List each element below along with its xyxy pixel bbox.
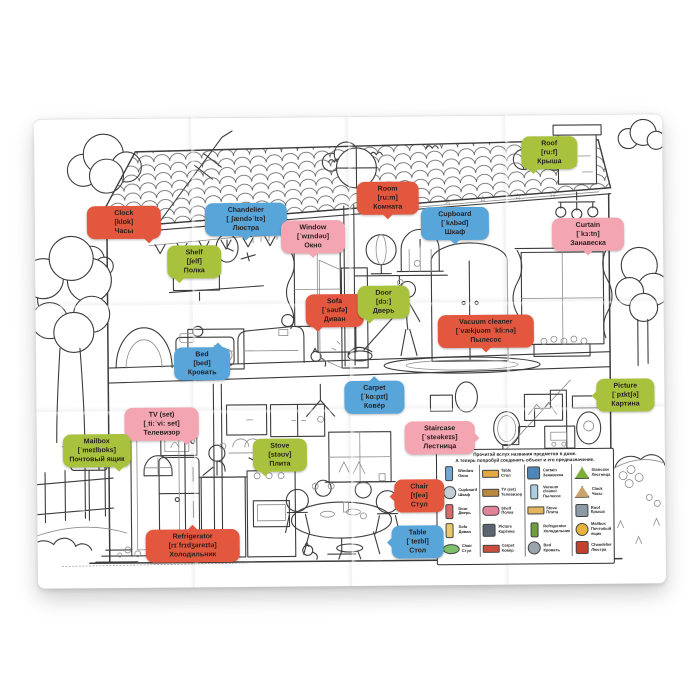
roof-label-bubble: Roof[ru:f]Крыша	[521, 136, 577, 170]
legend-column: CurtainЗанавескаVacuum cleanerПылесосSto…	[524, 465, 573, 557]
legend-item: CupboardШкаф	[442, 484, 477, 501]
tree-left-doodle	[34, 236, 141, 558]
label-ipa: [ˈmeɪlbɒks]	[68, 446, 126, 456]
legend-item: ClockЧасы	[575, 483, 612, 500]
shelf-label-bubble: Shelf[ʃelf]Полка	[167, 245, 221, 279]
room-label-bubble: Room[ru:m]Комната	[357, 181, 419, 215]
label-ru: Комната	[362, 203, 414, 213]
vacuum-icon	[527, 542, 541, 555]
table-label-bubble: Table[ˈteɪbl]Стол	[392, 525, 444, 559]
label-en: Bed	[179, 350, 225, 359]
sofa-icon	[482, 506, 499, 516]
stove-label-bubble: Stove[stəʊv]Плита	[253, 438, 307, 472]
legend-column: WindowОкноCupboardШкафDoorДверьSofaДиван…	[440, 465, 480, 557]
legend-item-label: BedКровать	[543, 543, 559, 553]
curtain-label-bubble: Curtain[ˈkɜ:tn]Занавеска	[552, 218, 624, 252]
legend-item-label: TableСтол	[501, 469, 511, 479]
staircase-label-bubble: Staircase[ˈsteəkeɪs]Лестница	[405, 421, 475, 455]
legend-item-label: PictureКартина	[498, 525, 514, 535]
legend-item-label: SofaДиван	[459, 525, 471, 535]
label-ru: Почтовый ящик	[68, 455, 126, 465]
legend-item: PictureКартина	[482, 521, 522, 538]
roof-icon	[575, 486, 590, 498]
legend-item: CurtainЗанавеска	[527, 465, 570, 482]
label-en: Roof	[526, 139, 572, 148]
label-ru: Лестница	[410, 442, 470, 452]
carpet-label-bubble: Carpet[ˈkɑ:pɪt]Ковёр	[344, 381, 404, 415]
curtain-icon	[442, 467, 456, 482]
carpet-icon	[483, 545, 500, 553]
label-ipa: [ru:m]	[362, 194, 414, 204]
legend-item-label: StoveПлита	[546, 506, 558, 516]
stove-icon	[527, 467, 541, 480]
label-ru: Полка	[172, 266, 216, 275]
mailbox-label-bubble: Mailbox[ˈmeɪlbɒks]Почтовый ящик	[63, 434, 131, 468]
label-en: Shelf	[172, 248, 216, 257]
legend-item: TV (set)Телевизор	[482, 484, 522, 501]
svg-text:☆: ☆	[514, 192, 522, 202]
legend-item: ChandelierЛюстра	[575, 539, 612, 556]
label-ru: Холодильник	[151, 550, 235, 560]
legend-item: MailboxПочтовый ящик	[575, 520, 612, 537]
chair-icon	[442, 504, 456, 519]
label-ipa: [ˈwɪndəʊ]	[286, 232, 340, 242]
legend-item: StaircaseЛестница	[574, 464, 611, 481]
legend-item: RoofКрыша	[575, 502, 612, 519]
label-ipa: [dɔ:]	[363, 298, 405, 307]
label-en: Chair	[399, 482, 439, 491]
vacuum-cleaner-label-bubble: Vacuum cleaner[ˈvækjuəm ˈkli:nə]Пылесос	[438, 314, 534, 348]
wardrobe-icon	[443, 523, 457, 538]
legend-item: TableСтол	[482, 465, 522, 482]
label-ipa: [stəʊv]	[258, 451, 302, 460]
legend-grid: WindowОкноCupboardШкафDoorДверьSofaДиван…	[440, 464, 611, 557]
svg-text:☆: ☆	[479, 195, 487, 205]
label-ru: Шкаф	[426, 228, 484, 238]
label-ru: Окно	[286, 241, 340, 251]
label-en: Window	[286, 223, 340, 233]
tv-icon	[482, 523, 496, 536]
label-ipa: [ˈkʌbəd]	[426, 219, 484, 229]
refrigerator-label-bubble: Refrigerator[rɪˈfrɪdʒəreɪtə]Холодильник	[146, 529, 240, 563]
legend-column: TableСтолTV (set)ТелевизорShelfПолкаPict…	[479, 465, 525, 557]
label-ru: Часы	[92, 227, 156, 237]
label-ru: Плита	[258, 460, 302, 469]
chandelier-icon	[575, 467, 590, 479]
bed-icon	[527, 507, 544, 515]
poster-sheet: ☆☆☆☆☆☆	[34, 113, 666, 588]
door-label-bubble: Door[dɔ:]Дверь	[357, 285, 409, 319]
legend-item: ChairСтул	[443, 540, 478, 557]
clock-icon	[575, 523, 589, 536]
label-ru: Крыша	[526, 157, 572, 166]
legend-item: CarpetКовёр	[483, 540, 523, 557]
label-en: Mailbox	[68, 437, 126, 447]
tv-set-label-bubble: TV (set)[ˌti:ˈvi: set]Телевизор	[124, 407, 198, 441]
legend-item-label: Vacuum cleanerПылесос	[543, 485, 570, 500]
label-ru: Стул	[399, 500, 439, 509]
label-en: Door	[362, 289, 404, 298]
legend-item-label: ClockЧасы	[592, 487, 603, 497]
chair-label-bubble: Chair[tʃeə]Стул	[394, 479, 444, 513]
legend-item-label: DoorДверь	[458, 507, 470, 517]
bed-label-bubble: Bed[bed]Кровать	[174, 347, 230, 381]
label-ipa: [bed]	[179, 359, 225, 368]
label-en: Room	[362, 184, 414, 194]
label-en: Carpet	[349, 384, 399, 394]
picture-icon	[482, 488, 499, 496]
legend-item: SofaДиван	[442, 522, 477, 539]
label-en: Table	[397, 528, 439, 537]
picture-label-bubble: Picture[ˈpɪktʃə]Картина	[596, 378, 654, 412]
label-en: Picture	[601, 381, 649, 391]
table-icon	[443, 544, 460, 554]
legend-item: Vacuum cleanerПылесос	[527, 483, 570, 500]
legend-item: WindowОкно	[442, 465, 477, 482]
ball-icon	[442, 486, 456, 499]
fridge-icon	[527, 485, 541, 500]
legend-item-label: MailboxПочтовый ящик	[591, 522, 612, 537]
legend-item-label: WindowОкно	[458, 469, 473, 479]
label-ipa: [ˈpɪktʃə]	[601, 390, 649, 400]
label-ipa: [ʃelf]	[172, 257, 216, 266]
legend-item: DoorДверь	[442, 503, 477, 520]
label-en: Cupboard	[426, 210, 484, 220]
clock-label-bubble: Clock[klɒk]Часы	[87, 206, 161, 240]
label-ru: Диван	[311, 315, 359, 325]
cupboard-label-bubble: Cupboard[ˈkʌbəd]Шкаф	[421, 207, 489, 241]
label-ru: Пылесос	[443, 336, 529, 346]
bottle-icon	[527, 522, 541, 537]
legend-item: RefrigeratorХолодильник	[527, 521, 570, 538]
svg-text:☆: ☆	[444, 197, 452, 207]
legend-item: StoveПлита	[527, 502, 570, 519]
legend-item-label: CurtainЗанавеска	[543, 468, 563, 478]
label-ru: Занавеска	[557, 239, 619, 249]
label-ru: Люстра	[210, 224, 282, 234]
legend-item-label: StaircaseЛестница	[592, 468, 611, 478]
page-background: ☆☆☆☆☆☆	[0, 0, 700, 700]
label-ipa: [ˈsəʊfə]	[311, 306, 359, 316]
label-ru: Ковёр	[349, 402, 399, 412]
label-ru: Стол	[397, 546, 439, 555]
label-ru: Дверь	[363, 307, 405, 316]
legend-item-label: CupboardШкаф	[458, 488, 477, 498]
label-ipa: [ˈkɑ:pɪt]	[349, 393, 399, 403]
legend-item-label: ShelfПолка	[501, 506, 513, 516]
label-ru: Картина	[601, 400, 649, 410]
label-ipa: [ˈteɪbl]	[397, 537, 439, 546]
legend-item-label: ChandelierЛюстра	[591, 543, 612, 553]
legend-item: ShelfПолка	[482, 502, 522, 519]
chandelier-label-bubble: Chandelier[ˌʃændəˈlɪə]Люстра	[205, 203, 287, 237]
legend-item: BedКровать	[527, 540, 570, 557]
label-ipa: [tʃeə]	[399, 491, 439, 500]
svg-text:☆: ☆	[549, 190, 557, 200]
shelf-icon	[482, 470, 499, 478]
brick-icon	[575, 504, 589, 517]
legend-item-label: TV (set)Телевизор	[501, 487, 522, 497]
legend-item-label: RefrigeratorХолодильник	[543, 525, 570, 535]
legend-item-label: CarpetКовёр	[502, 544, 515, 554]
mailbox-icon	[575, 541, 589, 554]
legend-column: StaircaseЛестницаClockЧасыRoofКрышаMailb…	[571, 464, 613, 556]
window-label-bubble: Window[ˈwɪndəʊ]Окно	[281, 220, 345, 254]
sofa-label-bubble: Sofa[ˈsəʊfə]Диван	[306, 294, 364, 328]
label-en: Sofa	[311, 297, 359, 307]
legend-box: Прочитай вслух названия предметов в доме…	[436, 448, 615, 566]
label-ru: Телевизор	[130, 429, 194, 439]
label-ru: Кровать	[179, 368, 225, 377]
legend-header-line2: А теперь попробуй соединить объект и его…	[440, 456, 610, 463]
legend-item-label: RoofКрыша	[591, 505, 605, 515]
label-en: Stove	[258, 441, 302, 450]
legend-item-label: ChairСтул	[462, 544, 472, 554]
label-ipa: [ru:f]	[526, 148, 572, 157]
